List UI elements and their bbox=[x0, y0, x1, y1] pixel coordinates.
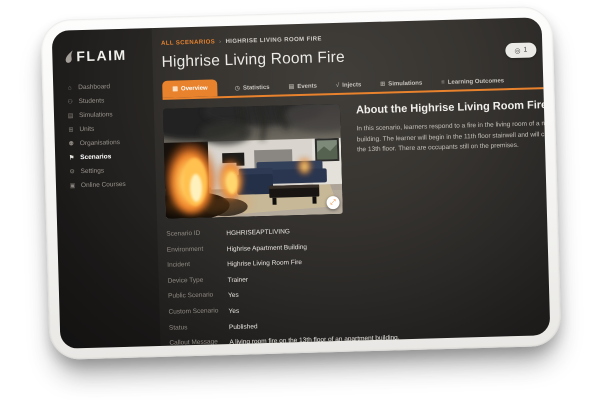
scenarios-icon: ⚑ bbox=[68, 154, 75, 161]
wall-art bbox=[315, 138, 340, 162]
app-screen: FLAIM ⌂ Dashboard ⚇ Students ▤ Simulatio… bbox=[52, 17, 551, 349]
flame-logo-icon bbox=[65, 50, 74, 63]
detail-value-callout-message: A living room fire on the 13th floor of … bbox=[229, 333, 407, 347]
units-icon: ⊞ bbox=[67, 126, 74, 133]
page-title: Highrise Living Room Fire bbox=[161, 41, 550, 72]
sidebar-item-label: Scenarios bbox=[80, 153, 111, 161]
sidebar-item-label: Students bbox=[79, 97, 105, 105]
tab-bar: ▦ Overview ◷ Statistics ▤ Events √ Injec… bbox=[162, 68, 550, 100]
detail-value-incident: Highrise Living Room Fire bbox=[227, 255, 405, 269]
tab-injects[interactable]: √ Injects bbox=[334, 78, 364, 93]
main-content: ALL SCENARIOS › HIGHRISE LIVING ROOM FIR… bbox=[152, 17, 551, 346]
breadcrumb-all-scenarios[interactable]: ALL SCENARIOS bbox=[161, 39, 215, 47]
sidebar-item-settings[interactable]: ⚙ Settings bbox=[69, 166, 156, 175]
detail-label: Environment bbox=[167, 245, 217, 253]
sidebar-item-label: Units bbox=[79, 126, 94, 133]
simulations-icon: ▤ bbox=[67, 112, 74, 119]
detail-label: Device Type bbox=[168, 276, 218, 284]
sidebar-item-online-courses[interactable]: ▣ Online Courses bbox=[69, 180, 156, 189]
tablet-mockup: FLAIM ⌂ Dashboard ⚇ Students ▤ Simulatio… bbox=[40, 6, 561, 360]
detail-label: Scenario ID bbox=[166, 229, 216, 237]
tab-label: Injects bbox=[342, 82, 361, 89]
tab-simulations-icon: ⊞ bbox=[380, 81, 385, 88]
dashboard-icon: ⌂ bbox=[66, 85, 73, 91]
tab-simulations[interactable]: ⊞ Simulations bbox=[378, 76, 424, 92]
tab-label: Simulations bbox=[388, 80, 422, 87]
events-icon: ▤ bbox=[289, 83, 295, 90]
sidebar-item-simulations[interactable]: ▤ Simulations bbox=[67, 110, 154, 119]
sidebar-item-units[interactable]: ⊞ Units bbox=[67, 124, 154, 133]
logo-text: FLAIM bbox=[76, 47, 127, 64]
sidebar-item-label: Organisations bbox=[80, 139, 120, 147]
about-section: About the Highrise Living Room Fire scen… bbox=[356, 96, 551, 213]
sidebar-nav: ⌂ Dashboard ⚇ Students ▤ Simulations ⊞ U… bbox=[66, 82, 156, 189]
breadcrumb-current: HIGHRISE LIVING ROOM FIRE bbox=[225, 36, 321, 45]
breadcrumb-separator: › bbox=[219, 39, 222, 45]
flaim-logo: FLAIM bbox=[65, 46, 152, 64]
injects-icon: √ bbox=[336, 83, 339, 89]
scenario-image: ⤢ bbox=[163, 104, 343, 219]
detail-value-custom-scenario: Yes bbox=[228, 302, 406, 316]
tab-label: Overview bbox=[181, 85, 208, 92]
settings-gear-icon: ⚙ bbox=[69, 168, 76, 175]
scenario-details-table: Scenario ID HGHRISEAPTLIVING Environment… bbox=[166, 218, 550, 349]
sidebar-item-label: Settings bbox=[80, 167, 104, 175]
tab-overview[interactable]: ▦ Overview bbox=[162, 79, 218, 98]
header-action-icon: ◎ bbox=[514, 46, 520, 54]
detail-label: Incident bbox=[167, 261, 217, 269]
students-icon: ⚇ bbox=[67, 98, 74, 105]
online-courses-icon: ▣ bbox=[69, 182, 76, 189]
detail-label: Status bbox=[169, 323, 219, 331]
sidebar-item-dashboard[interactable]: ⌂ Dashboard bbox=[66, 82, 153, 91]
detail-label: Public Scenario bbox=[168, 292, 218, 300]
sidebar-item-label: Dashboard bbox=[78, 83, 110, 91]
about-body: In this scenario, learners respond to a … bbox=[356, 117, 550, 155]
tab-learning-outcomes[interactable]: ≡ Learning Outcomes bbox=[439, 74, 506, 90]
tab-events[interactable]: ▤ Events bbox=[286, 78, 319, 94]
sidebar-item-label: Online Courses bbox=[81, 181, 126, 189]
detail-value-scenario-id: HGHRISEAPTLIVING bbox=[226, 224, 404, 238]
overview-panel: ⤢ About the Highrise Living Room Fire sc… bbox=[163, 96, 550, 219]
header-action-label: 1 bbox=[523, 47, 527, 54]
statistics-icon: ◷ bbox=[235, 85, 240, 92]
detail-value-environment: Highrise Apartment Building bbox=[227, 240, 405, 254]
tab-label: Learning Outcomes bbox=[448, 78, 504, 86]
tab-label: Events bbox=[297, 83, 317, 90]
fullscreen-icon: ⤢ bbox=[330, 199, 336, 206]
organisations-icon: ⚉ bbox=[68, 140, 75, 147]
detail-label: Custom Scenario bbox=[168, 307, 218, 315]
detail-label: Callout Message bbox=[169, 338, 219, 346]
detail-value-status: Published bbox=[229, 318, 407, 332]
learning-outcomes-icon: ≡ bbox=[441, 80, 445, 86]
sidebar-item-organisations[interactable]: ⚉ Organisations bbox=[68, 138, 155, 147]
sidebar-item-label: Simulations bbox=[79, 111, 113, 119]
about-heading: About the Highrise Living Room Fire scen… bbox=[356, 96, 551, 118]
sidebar: FLAIM ⌂ Dashboard ⚇ Students ▤ Simulatio… bbox=[52, 28, 161, 349]
overview-icon: ▦ bbox=[172, 85, 178, 92]
detail-value-device-type: Trainer bbox=[228, 271, 406, 285]
living-room-fire-scene bbox=[163, 104, 343, 219]
sidebar-item-scenarios[interactable]: ⚑ Scenarios bbox=[68, 152, 155, 161]
sidebar-item-students[interactable]: ⚇ Students bbox=[67, 96, 154, 105]
tab-statistics[interactable]: ◷ Statistics bbox=[232, 80, 271, 96]
header-action-button[interactable]: ◎ 1 bbox=[505, 42, 536, 58]
tab-label: Statistics bbox=[243, 84, 270, 91]
detail-value-public-scenario: Yes bbox=[228, 286, 406, 300]
